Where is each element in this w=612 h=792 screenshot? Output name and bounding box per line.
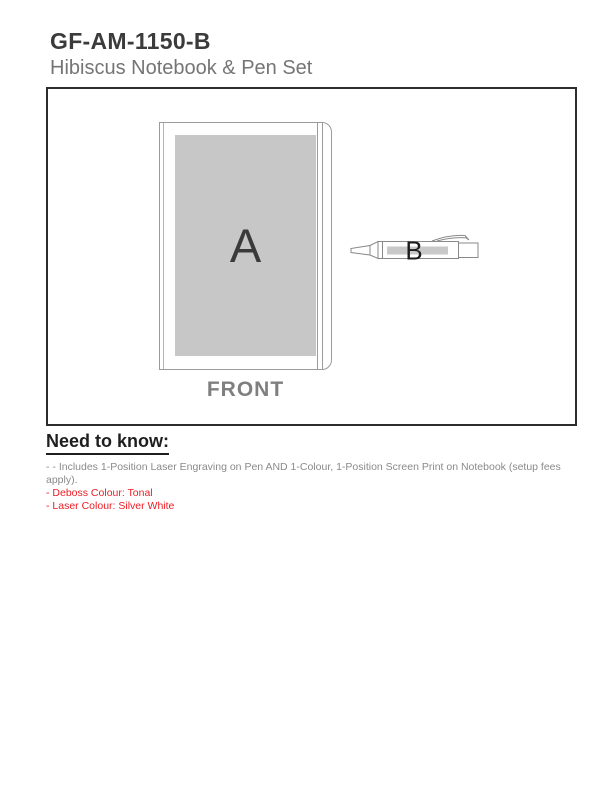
- need-to-know-notes: - - Includes 1-Position Laser Engraving …: [46, 461, 587, 513]
- front-view-label: FRONT: [159, 378, 332, 402]
- need-to-know-heading: Need to know:: [46, 431, 169, 455]
- note-line-deboss-colour: - Deboss Colour: Tonal: [46, 487, 587, 500]
- imprint-letter-b: B: [405, 236, 422, 266]
- pen-end-cap: [459, 243, 479, 258]
- spec-sheet-page: GF-AM-1150-B Hibiscus Notebook & Pen Set…: [0, 0, 612, 792]
- pen-cone: [370, 242, 378, 259]
- product-name-subtitle: Hibiscus Notebook & Pen Set: [50, 57, 312, 80]
- pen-diagram: B: [348, 231, 480, 265]
- artwork-frame: A FRONT B: [46, 87, 577, 426]
- notebook-imprint-area: A: [175, 135, 316, 356]
- note-line-laser-colour: - Laser Colour: Silver White: [46, 500, 587, 513]
- elastic-band: [317, 123, 323, 369]
- notebook-diagram: A: [159, 122, 332, 370]
- note-line-included: - - Includes 1-Position Laser Engraving …: [46, 461, 587, 487]
- product-code-title: GF-AM-1150-B: [50, 28, 211, 55]
- notebook-spine-line: [163, 123, 164, 369]
- pen-clip: [432, 235, 469, 241]
- imprint-letter-a: A: [230, 218, 261, 273]
- pen-tip: [351, 246, 370, 256]
